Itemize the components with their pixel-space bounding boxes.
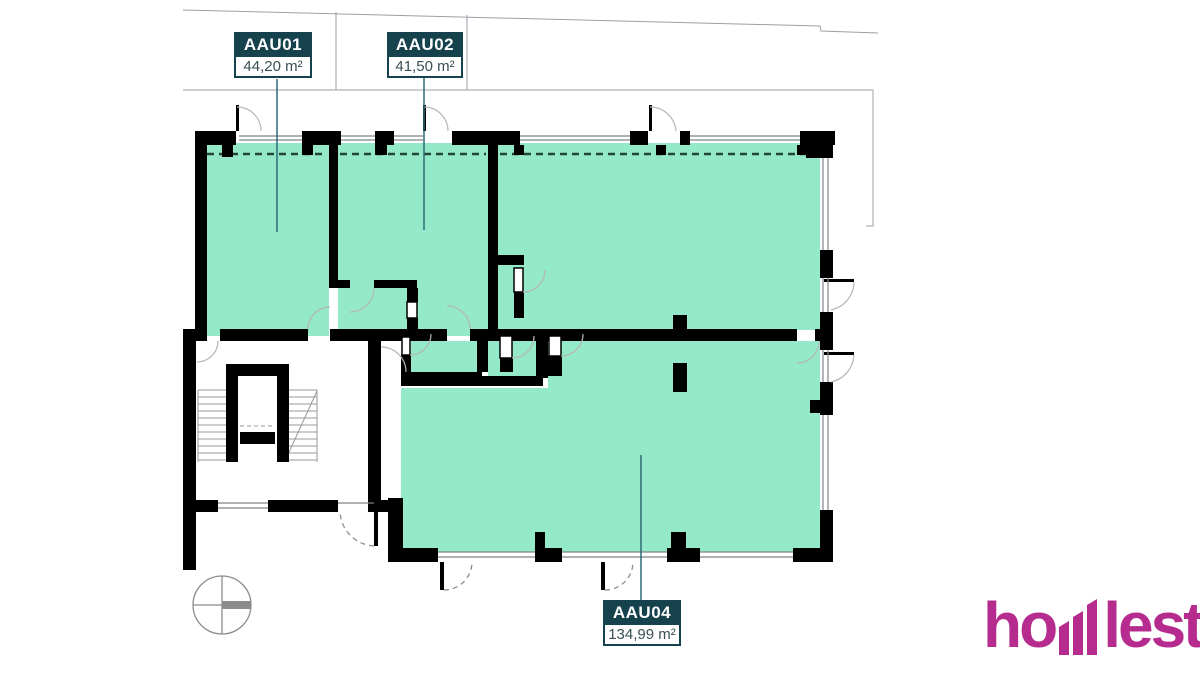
room-aau01-fill <box>207 143 329 336</box>
room-fills <box>207 143 820 552</box>
logo-text-left: ho <box>983 594 1055 656</box>
room-aau04-fill <box>401 388 820 552</box>
unit-id: AAU01 <box>234 32 312 57</box>
pillar <box>673 363 687 392</box>
unit-area: 41,50 m² <box>387 57 463 78</box>
logo-text-right: lest <box>1103 594 1200 656</box>
logo-bars-icon <box>1057 593 1101 655</box>
unit-label-aau02[interactable]: AAU02 41,50 m² <box>387 32 463 78</box>
room-closet-fill <box>498 265 514 318</box>
elevator-shaft <box>226 364 289 462</box>
floorplan-page: AAU01 44,20 m² AAU02 41,50 m² AAU04 134,… <box>0 0 1200 675</box>
room-top-right-fill <box>498 143 820 330</box>
unit-id: AAU04 <box>603 600 681 625</box>
room-wc-a-fill <box>411 341 477 372</box>
compass-icon <box>193 576 251 634</box>
unit-label-aau01[interactable]: AAU01 44,20 m² <box>234 32 312 78</box>
floor-plan-drawing <box>0 0 1200 675</box>
unit-area: 134,99 m² <box>603 625 681 646</box>
unit-label-aau04[interactable]: AAU04 134,99 m² <box>603 600 681 646</box>
unit-area: 44,20 m² <box>234 57 312 78</box>
unit-id: AAU02 <box>387 32 463 57</box>
homest-logo[interactable]: ho lest <box>983 593 1200 656</box>
